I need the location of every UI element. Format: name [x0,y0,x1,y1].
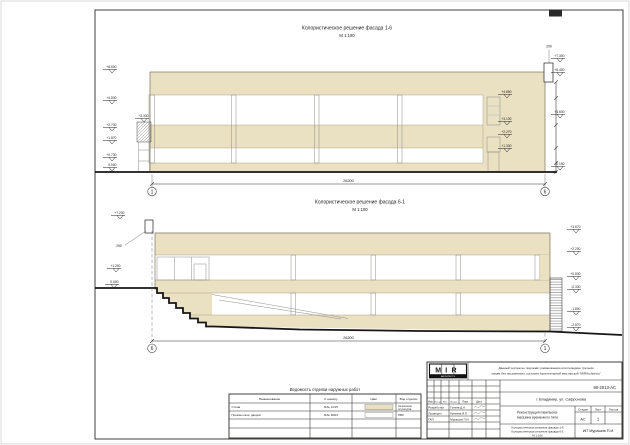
elevation-mark: +2.200 [570,247,580,251]
doc-scale: М 1:100 [532,434,543,438]
sig-role: Проверил [428,412,442,416]
elevation-mark: +4.850 [501,90,511,94]
color-swatch [365,412,393,417]
object-address: г. Владимир, ул. Сафронова [536,397,587,401]
disclaimer: Данный чертеж не подлежит размножению ил… [499,366,594,370]
wall-margin [540,255,551,280]
top-elevation-scale: М 1:100 [339,33,355,38]
elevation-mark: -1.800 [571,307,581,311]
stage-label: Стадия [578,408,588,412]
corner-mark [549,10,562,17]
drawing-sheet: Колористическое решение фасада 1-6 М 1:1… [0,0,630,445]
sig-name: Кунеева И.П. [450,412,468,416]
elevation-mark: +3.600 [554,110,564,114]
column-header: Наименование [259,397,281,401]
elevation-mark: 0.000 [108,163,116,167]
sheet-label: Лист [595,408,602,412]
axis-label: 6 [544,189,547,195]
column-header: К номеру [324,397,338,401]
bottom-elevation-scale: М 1:100 [352,207,368,212]
elevation-mark: +6.600 [106,65,116,69]
pipe-width-dim: 290 [546,45,552,49]
window-band-upper [150,95,483,125]
elevation-mark: -2.870 [571,323,581,327]
project-code: 90-2013-АС [594,385,617,390]
total-dimension: 26200 [343,179,354,183]
open-level [212,293,550,315]
logo-sub: ARCHITECTS [441,375,456,378]
stage-value: АС [580,417,585,421]
elevation-mark: +0.530 [570,272,580,276]
column-header: Цвет [371,397,379,401]
elevation-mark: +4.530 [106,96,116,100]
table-cell: RAL 1015 [324,405,338,409]
top-elevation-title: Колористическое решение фасада 1-6 [302,26,392,32]
sig-col: Кол.уч [435,401,442,403]
elevation-mark: +7.300 [554,54,564,58]
firm-name: ИП Мурашов П.И. [583,429,615,433]
table-cell: ПВХ [398,413,404,417]
elevation-mark: +6.400 [554,68,564,72]
sig-role: ГАП [428,418,433,422]
external-stair-hatch [137,122,151,142]
axis-label: 6 [151,346,154,352]
window-band-lower [150,148,483,163]
column-header: Вид отделки [400,397,418,401]
sig-role: Разработал [428,406,444,410]
disclaimer: лицам без письменного согласия Архитекту… [491,372,601,376]
table-cell: Стена [232,405,241,409]
elevation-mark: +1.200 [110,264,120,268]
sig-col: Изм. [428,400,434,403]
elevation-mark: +0.730 [106,153,116,157]
table-cell: штукатурка [398,408,412,411]
sig-name: Мурашов П.И. [450,418,469,422]
pipe-width-dim: 290 [116,244,122,248]
elevation-mark: +2.730 [106,123,116,127]
elevation-mark: +2.270 [501,130,511,134]
sheets-label: Листов [609,408,619,412]
drawing-canvas: Колористическое решение фасада 1-6 М 1:1… [0,0,630,445]
elevation-mark: +7.200 [114,211,124,215]
project-name: Реконструкция павильона- [517,410,558,414]
elevation-mark: +3.130 [501,117,511,121]
project-name: магазина временного типа [517,415,558,419]
elevation-mark: +1.330 [501,144,511,148]
bottom-elevation-title: Колористическое решение фасада 6-1 [315,200,405,206]
elevation-mark: -0.330 [571,285,581,289]
logo-text: MIR [435,368,460,375]
elevation-mark: -0.150 [555,162,565,166]
table-cell: Проемы окон, дверей [232,413,261,417]
axis-label: 1 [544,346,547,352]
table-cell: RAL 9003 [324,413,338,417]
elevation-mark: +3.330 [138,114,148,118]
total-dimension: 26200 [343,336,354,340]
finish-schedule-title: Ведомость отделки наружных работ [290,387,361,392]
color-swatch [365,405,393,410]
sig-name: Гунеев Д.А. [450,406,466,410]
axis-label: 1 [151,189,154,195]
sig-col: Дата [476,400,482,403]
elevation-mark: +3.670 [570,225,580,229]
external-stair [550,278,562,331]
sig-col: № док. [450,400,457,403]
sig-col: Подп. [462,400,469,403]
window-band [155,255,550,280]
elevation-mark: +1.870 [106,136,116,140]
sig-col: Лист [443,401,448,403]
elevation-mark: 0.000 [110,280,118,284]
